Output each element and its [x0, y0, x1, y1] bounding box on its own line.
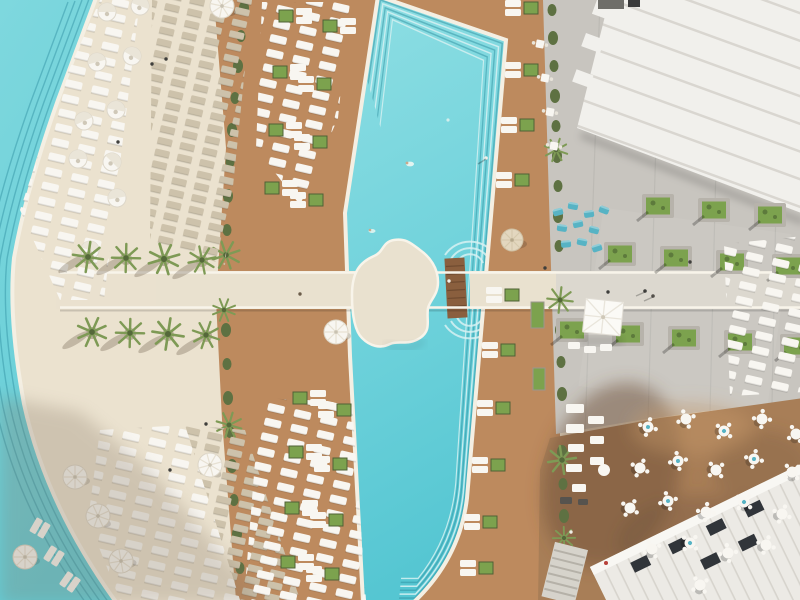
roof-entry — [598, 0, 624, 9]
scene-canvas — [0, 0, 800, 600]
wood-steps — [444, 258, 467, 319]
person-white — [569, 530, 572, 533]
planter-strip — [533, 368, 545, 390]
aerial-resort-photo: Aerial top-down view of a beach-club res… — [0, 0, 800, 600]
person-red — [604, 561, 608, 565]
planter-strip — [531, 302, 544, 328]
terrace-lounger-rows — [724, 236, 800, 396]
roof-dark-object — [628, 0, 640, 7]
